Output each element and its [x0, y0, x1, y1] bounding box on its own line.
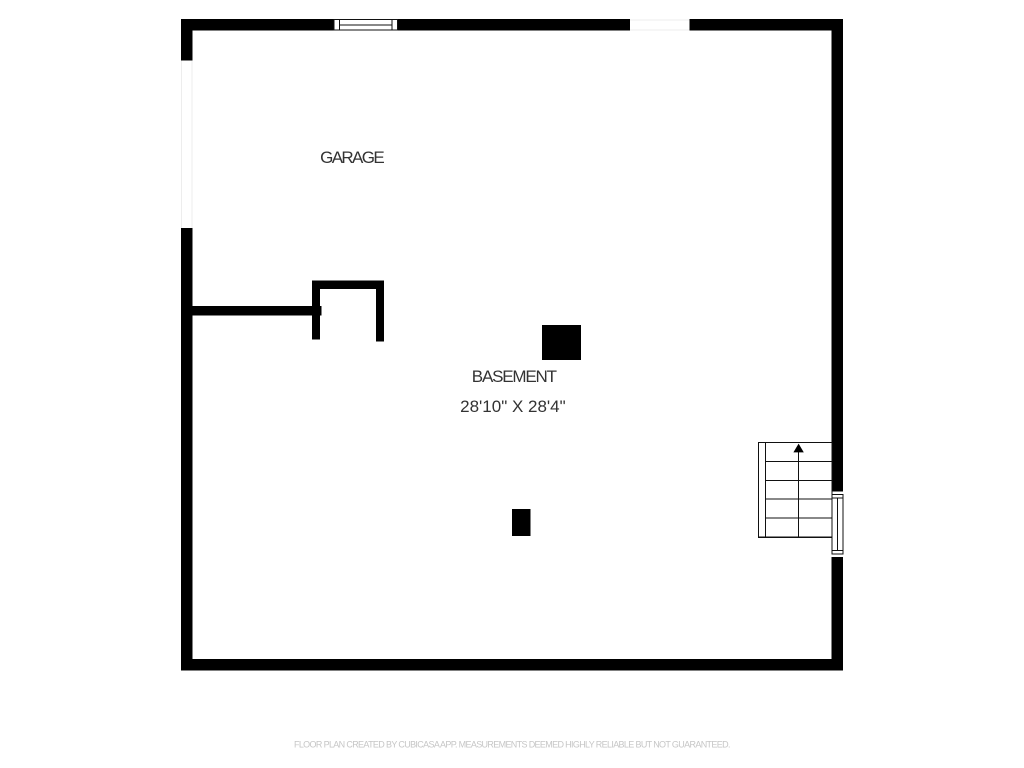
svg-text:BASEMENT: BASEMENT: [472, 367, 557, 386]
svg-text:FLOOR PLAN CREATED BY CUBICASA: FLOOR PLAN CREATED BY CUBICASA APP. MEAS…: [294, 740, 730, 750]
svg-text:GARAGE: GARAGE: [320, 148, 384, 167]
svg-text:28'10" X 28'4": 28'10" X 28'4": [460, 397, 566, 416]
